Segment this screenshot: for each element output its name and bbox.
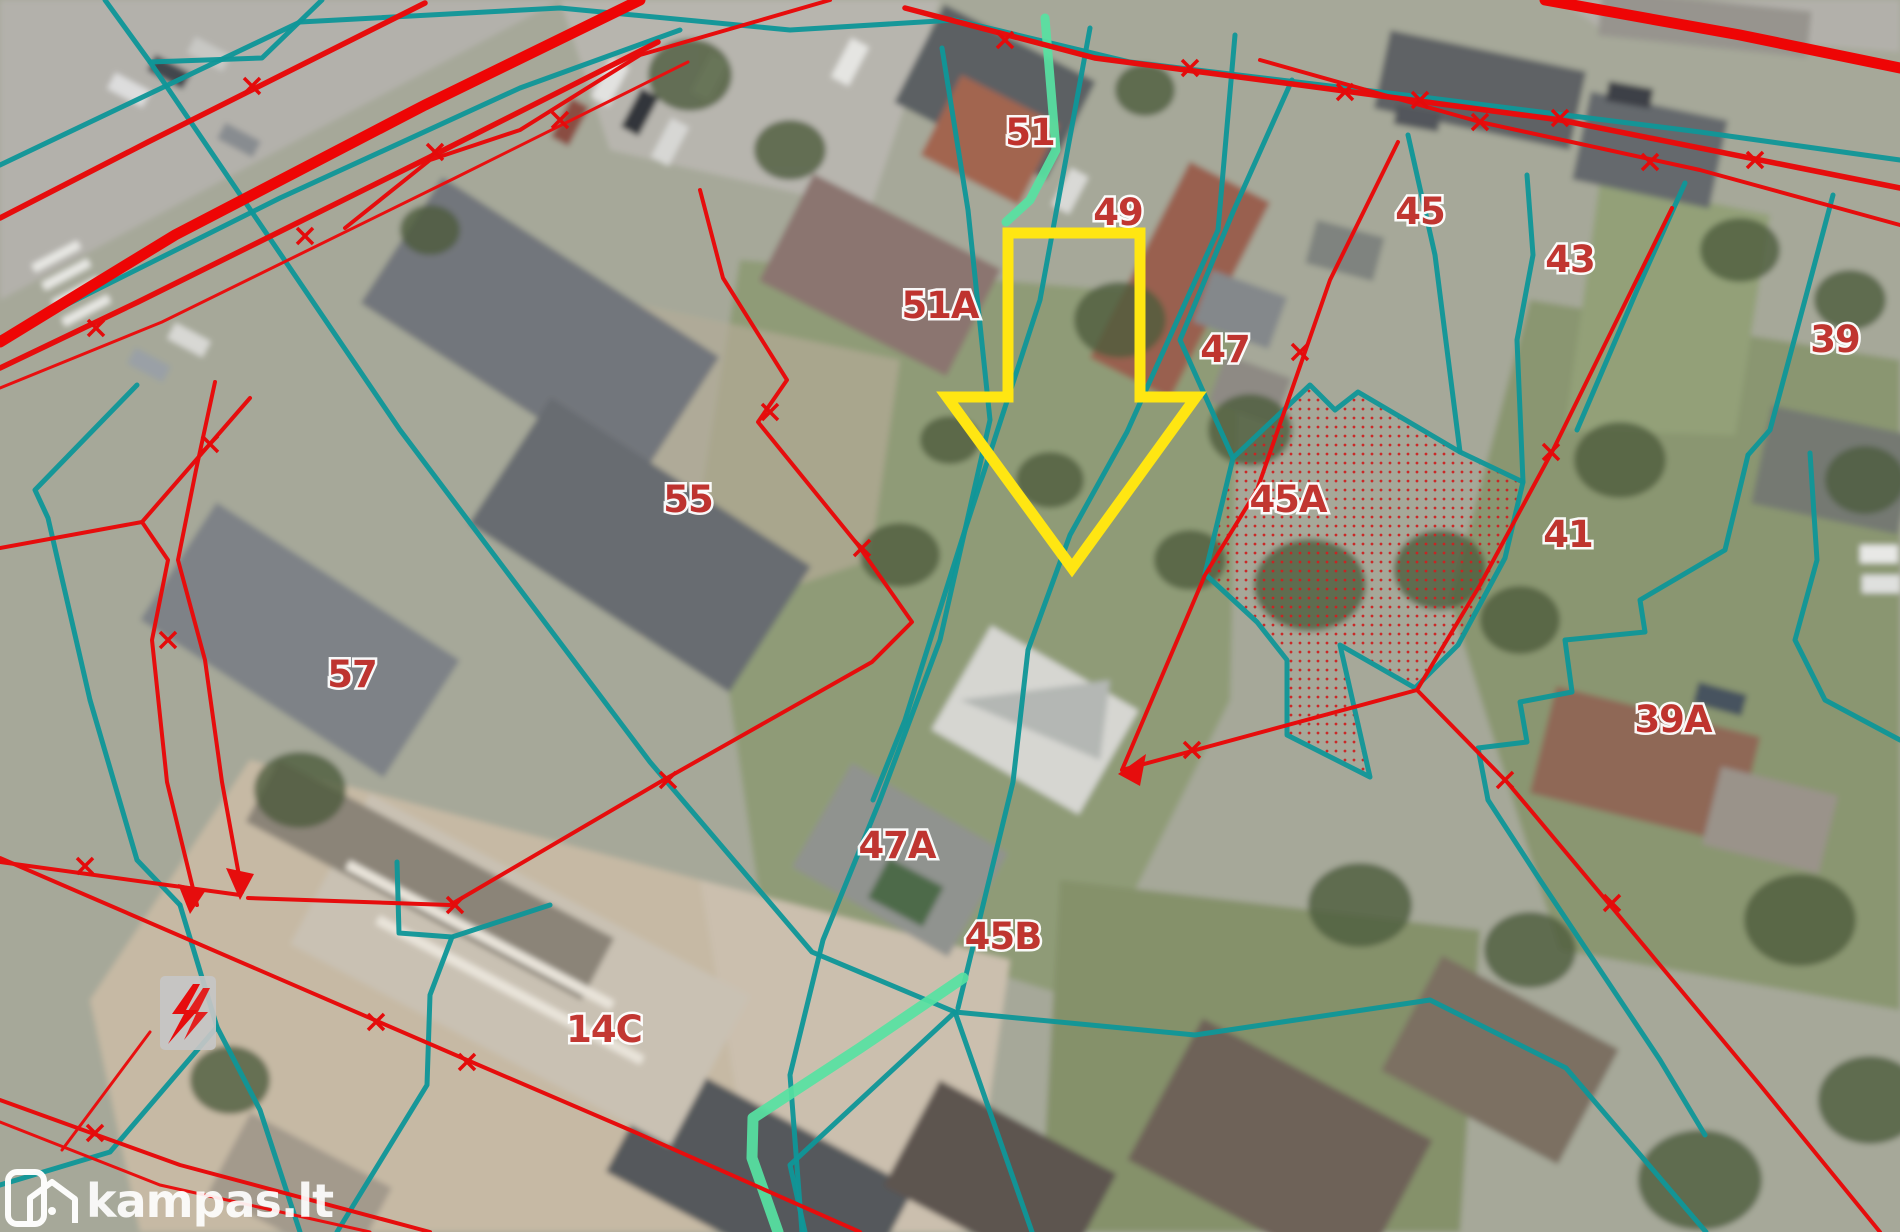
parcel-label-45A: 45A: [1249, 478, 1327, 521]
parcel-label-51: 51: [1005, 111, 1055, 154]
parcel-label-45B: 45B: [965, 915, 1042, 958]
parcel-label-14C: 14C: [566, 1008, 642, 1051]
parcel-label-41: 41: [1543, 513, 1593, 556]
parcel-label-47: 47: [1200, 328, 1250, 371]
parcel-label-47A: 47A: [858, 824, 936, 867]
parcel-label-51A: 51A: [901, 284, 979, 327]
map-viewport[interactable]: kampas.lt 51 49 51A 47 45 43 39 55 45A 4…: [0, 0, 1900, 1232]
cadastral-aerial-map: kampas.lt 51 49 51A 47 45 43 39 55 45A 4…: [0, 0, 1900, 1232]
parcel-label-39: 39: [1810, 318, 1860, 361]
parcel-label-55: 55: [663, 478, 713, 521]
parcel-label-57: 57: [327, 653, 377, 696]
parcel-label-43: 43: [1545, 238, 1595, 281]
parcel-label-45: 45: [1395, 190, 1445, 233]
parcel-label-49: 49: [1093, 191, 1143, 234]
parcel-label-39A: 39A: [1634, 698, 1712, 741]
aerial-photo-background: [0, 0, 1900, 1232]
lightning-icon: [160, 976, 216, 1050]
watermark-text: kampas.lt: [86, 1174, 333, 1228]
